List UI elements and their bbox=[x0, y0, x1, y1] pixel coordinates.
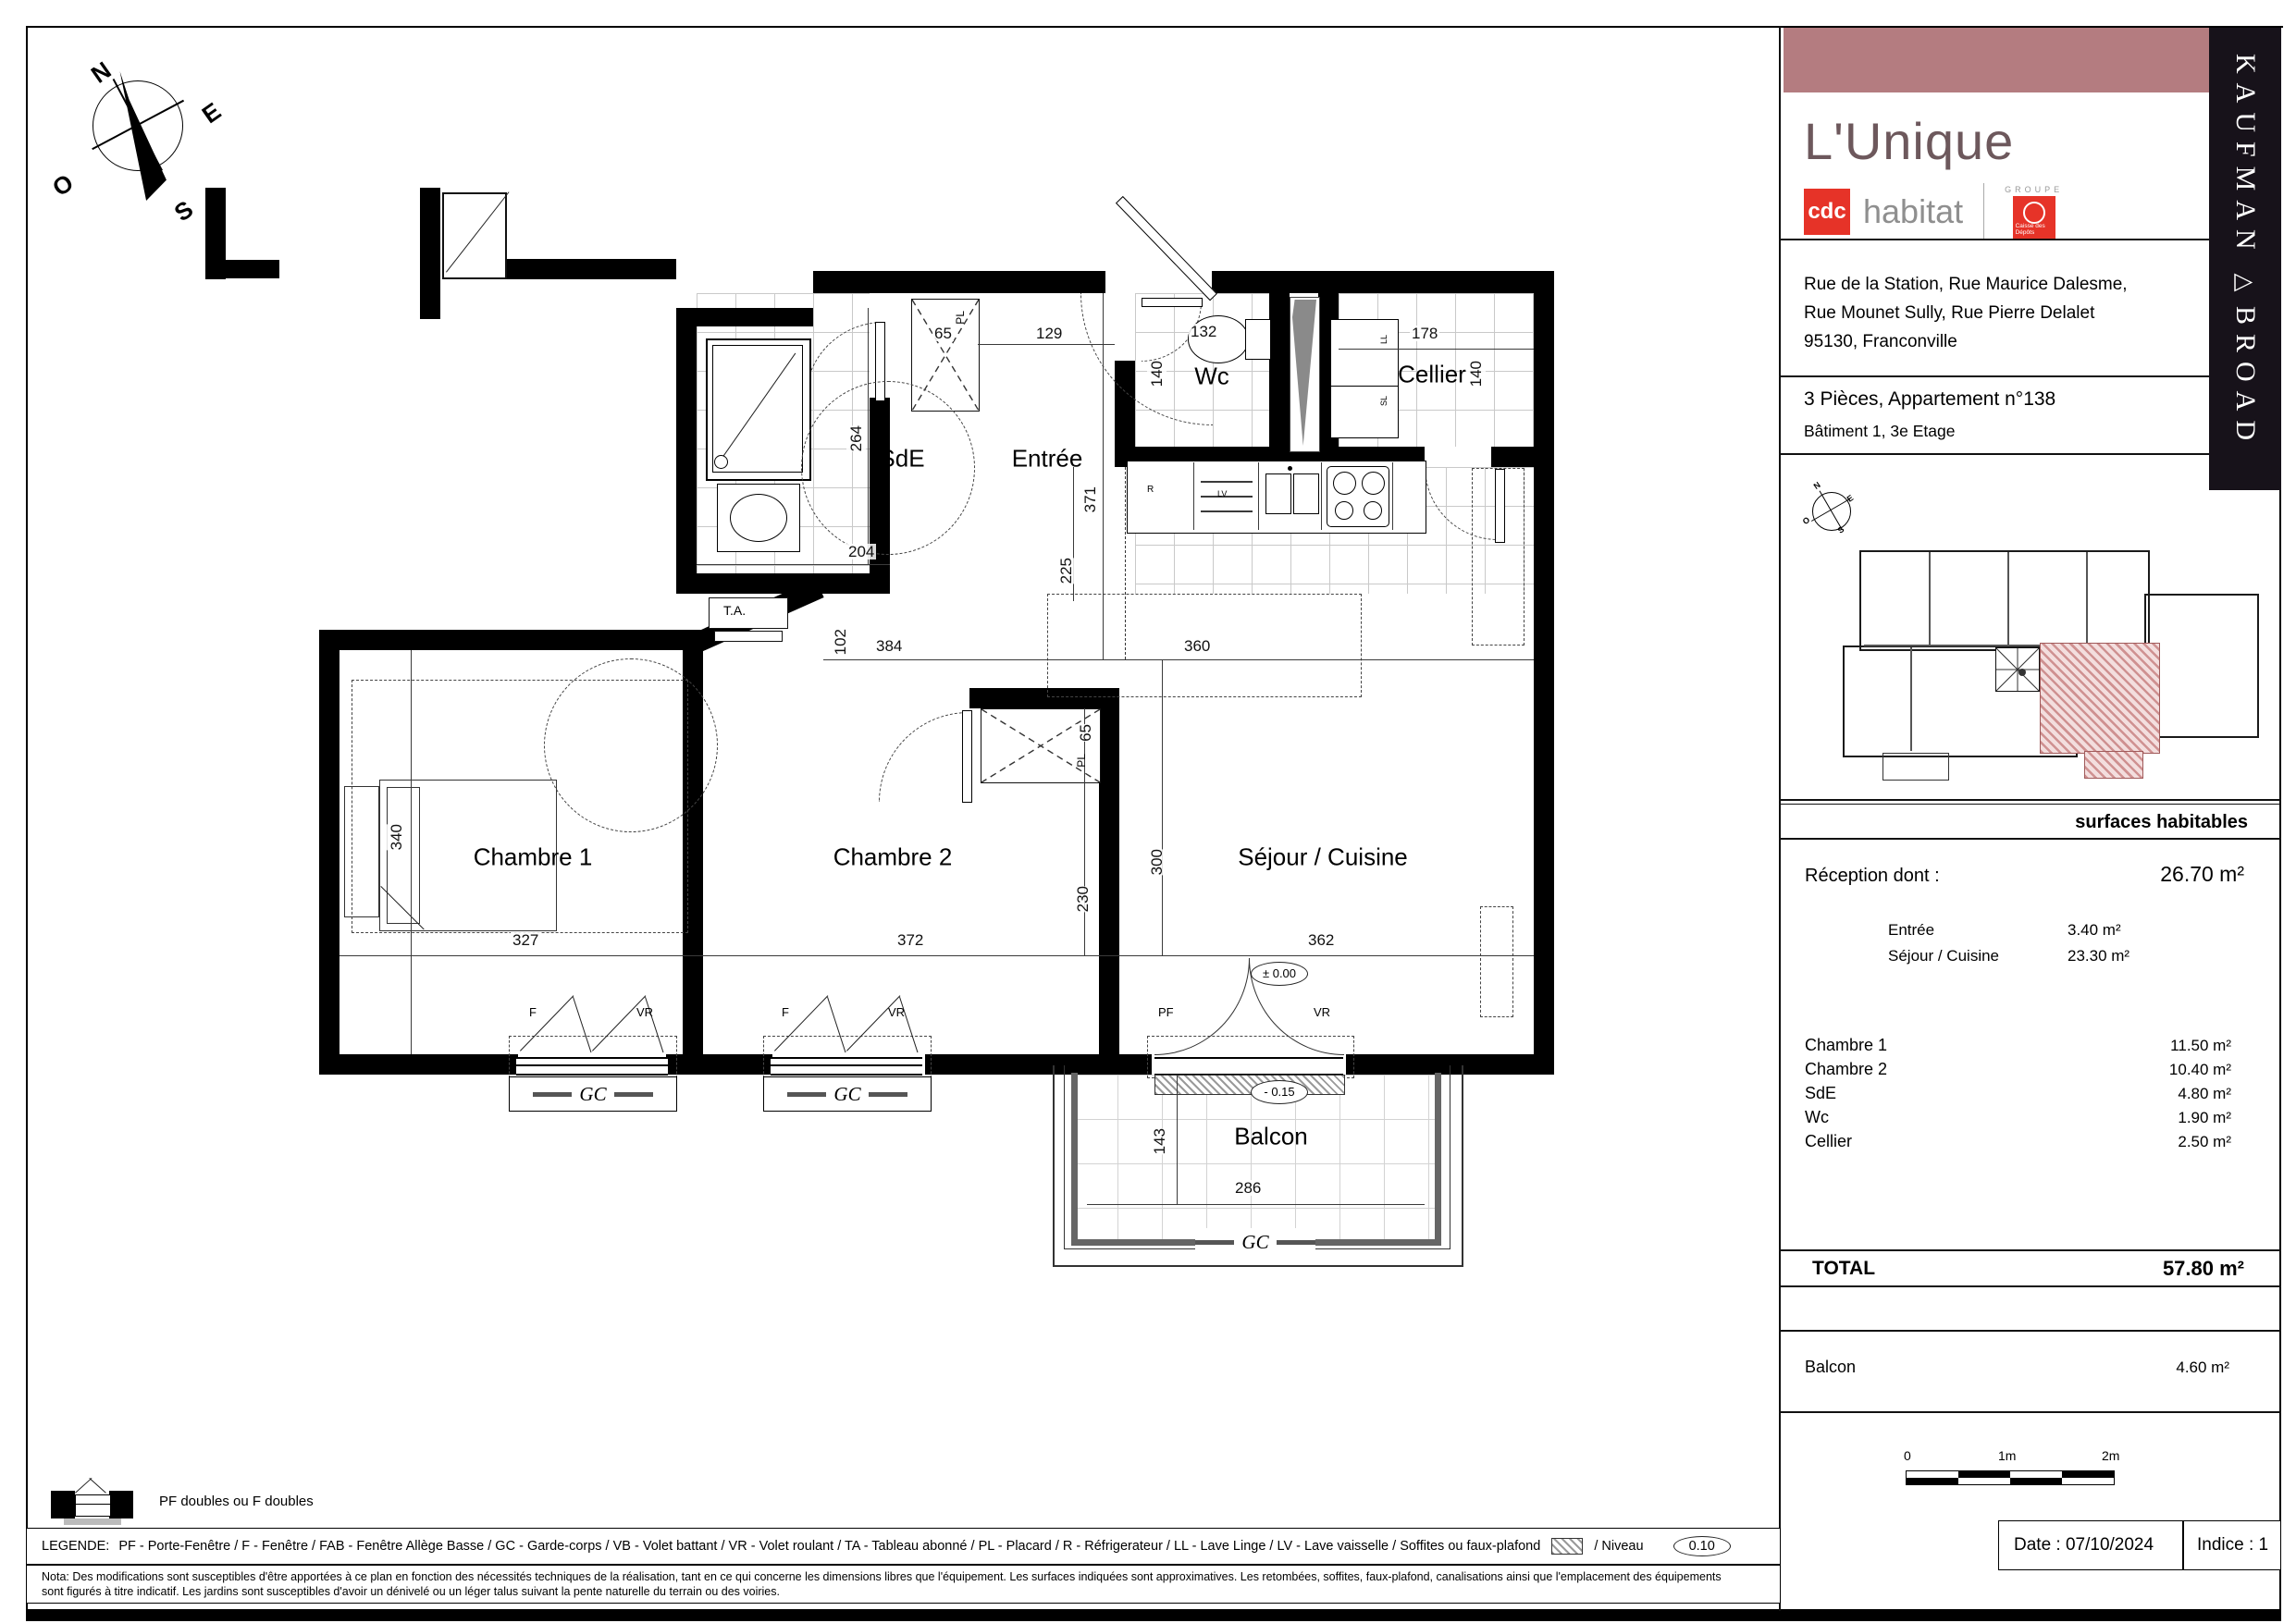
keyplan-apartment-highlight bbox=[2040, 643, 2160, 754]
wall-segment bbox=[319, 630, 703, 650]
panel-pink-bar bbox=[1784, 28, 2209, 92]
habitat-logo-text: habitat bbox=[1863, 192, 1963, 231]
pf-doubles-label: PF doubles ou F doubles bbox=[159, 1494, 314, 1509]
keyplan-compass-n: N bbox=[1812, 480, 1822, 491]
total-row: TOTAL 57.80 m² bbox=[1779, 1251, 2281, 1285]
dim-label: 360 bbox=[1182, 638, 1212, 654]
wall-segment bbox=[1212, 271, 1554, 293]
placard-x bbox=[981, 709, 1100, 782]
cdc-habitat-logo: cdc habitat GROUPE Caisse des Dépôts bbox=[1804, 183, 2063, 240]
nota-line: Nota: Des modifications sont susceptible… bbox=[42, 1569, 1762, 1584]
surface-room-label: Chambre 1 bbox=[1805, 1036, 1887, 1055]
keyplan-balcony-tab bbox=[1882, 753, 1949, 781]
scale-cell bbox=[2062, 1471, 2114, 1478]
dim-line bbox=[823, 659, 1534, 660]
dim-label: 140 bbox=[1147, 361, 1167, 387]
plan-small-label: PF bbox=[1158, 1006, 1174, 1018]
legend-prefix: LEGENDE: bbox=[42, 1539, 109, 1554]
kaufman-broad-strip: KAUFMAN △ BROAD bbox=[2209, 28, 2281, 490]
balcon-label: Balcon bbox=[1805, 1358, 1856, 1377]
surfaces-header: surfaces habitables bbox=[1779, 812, 2248, 833]
wall-segment bbox=[1491, 447, 1534, 467]
plan-small-label: F bbox=[782, 1006, 789, 1018]
dim-label: 362 bbox=[1306, 932, 1336, 948]
pf-symbol-window bbox=[75, 1494, 111, 1517]
panel-divider bbox=[1779, 804, 2281, 805]
surface-detail-label: Séjour / Cuisine bbox=[1888, 947, 1999, 965]
panel-divider bbox=[1779, 799, 2281, 801]
soffit-dashed-box bbox=[1480, 906, 1513, 1017]
floor-plan: GC GC GC bbox=[0, 0, 1779, 1480]
wall-segment bbox=[676, 573, 890, 594]
legend-niveau-label: / Niveau bbox=[1594, 1539, 1643, 1554]
dim-line bbox=[1162, 659, 1163, 955]
counter-divider bbox=[1258, 462, 1259, 530]
chambre2-door-leaf bbox=[962, 710, 972, 803]
sheet-border-bottom-bar bbox=[26, 1609, 2281, 1621]
counter-divider bbox=[1193, 462, 1194, 530]
room-label: Séjour / Cuisine bbox=[1238, 843, 1408, 872]
total-value: 57.80 m² bbox=[2163, 1257, 2244, 1281]
legend-niveau-value: 0.10 bbox=[1689, 1539, 1715, 1554]
dim-label: 65 bbox=[932, 326, 954, 341]
surface-detail-label: Entrée bbox=[1888, 921, 1934, 940]
balcon-row: Balcon 4.60 m² bbox=[1779, 1332, 2281, 1411]
plan-small-label: T.A. bbox=[723, 604, 746, 617]
kaufman-broad-triangle-icon: △ bbox=[2231, 273, 2260, 291]
dim-label: 327 bbox=[511, 932, 540, 948]
sink-bowl bbox=[1265, 473, 1291, 514]
balcon-value: 4.60 m² bbox=[2176, 1359, 2229, 1377]
zone-dashed-box bbox=[352, 680, 688, 933]
nota-text: Nota: Des modifications sont susceptible… bbox=[42, 1569, 1762, 1599]
plan-small-label: VR bbox=[636, 1006, 653, 1018]
legend-row: LEGENDE:PF - Porte-Fenêtre / F - Fenêtre… bbox=[42, 1536, 1762, 1556]
surface-room-value: 1.90 m² bbox=[2178, 1109, 2231, 1127]
dim-label: 340 bbox=[387, 824, 406, 850]
panel-divider bbox=[1779, 1285, 2281, 1287]
dim-label: 102 bbox=[831, 629, 850, 655]
plan-small-label: F bbox=[529, 1006, 537, 1018]
dim-label: 178 bbox=[1410, 326, 1439, 341]
wall-segment bbox=[813, 271, 1105, 293]
address-block: Rue de la Station, Rue Maurice Dalesme, … bbox=[1804, 270, 2128, 356]
dim-label: 371 bbox=[1080, 486, 1100, 512]
scale-cell bbox=[1958, 1471, 2010, 1478]
surface-room-value: 2.50 m² bbox=[2178, 1133, 2231, 1151]
dim-label: 204 bbox=[846, 544, 876, 559]
tableau-abonne-strip bbox=[714, 631, 783, 642]
indice-value: Indice : 1 bbox=[2197, 1535, 2268, 1555]
nota-line: sont figurés à titre indicatif. Les jard… bbox=[42, 1584, 1762, 1599]
dim-label: 264 bbox=[846, 425, 866, 451]
wall-segment bbox=[1534, 293, 1554, 1075]
dim-label: 132 bbox=[1189, 324, 1218, 339]
wall-segment bbox=[319, 1054, 518, 1075]
gc-bar bbox=[869, 1092, 907, 1097]
total-label: TOTAL bbox=[1812, 1258, 1875, 1280]
counter-divider bbox=[1321, 462, 1322, 530]
room-label: Wc bbox=[1194, 363, 1229, 391]
reception-value: 26.70 m² bbox=[2160, 862, 2244, 887]
scale-tick-2m: 2m bbox=[2102, 1448, 2119, 1463]
pf-doubles-symbol bbox=[51, 1478, 153, 1524]
pf-symbol-sill bbox=[64, 1518, 121, 1525]
cdc-logo-text: cdc bbox=[1808, 199, 1845, 225]
logo-divider bbox=[1983, 183, 1984, 240]
wall-segment bbox=[420, 188, 440, 319]
surfaces-table: Réception dont : 26.70 m² Entrée3.40 m²S… bbox=[1779, 840, 2281, 1249]
dim-label: 300 bbox=[1147, 849, 1167, 875]
sink-bowl bbox=[1293, 473, 1319, 514]
plan-small-label: LV bbox=[1217, 490, 1227, 498]
dim-label: 230 bbox=[1073, 886, 1092, 912]
dim-label: 372 bbox=[895, 932, 925, 948]
shaft-triangle bbox=[1292, 300, 1316, 446]
dim-line bbox=[1103, 293, 1104, 659]
gc-bar bbox=[533, 1092, 572, 1097]
scale-tick-1m: 1m bbox=[1998, 1448, 2016, 1463]
scale-cell bbox=[2010, 1478, 2062, 1484]
legend-text: PF - Porte-Fenêtre / F - Fenêtre / FAB -… bbox=[118, 1539, 1540, 1554]
groupe-text: GROUPE bbox=[2005, 185, 2063, 194]
wall-segment bbox=[666, 1054, 772, 1075]
tableau-abonne-box bbox=[709, 597, 788, 629]
dim-label: 225 bbox=[1056, 558, 1076, 584]
window-midline bbox=[771, 1064, 922, 1066]
gc-bar bbox=[787, 1092, 826, 1097]
address-line: Rue Mounet Sully, Rue Pierre Delalet bbox=[1804, 299, 2128, 327]
date-value: Date : 07/10/2024 bbox=[2014, 1535, 2154, 1555]
apartment-floor: Bâtiment 1, 3e Etage bbox=[1804, 422, 1955, 441]
stove-burner bbox=[1364, 501, 1382, 520]
reception-label: Réception dont : bbox=[1805, 866, 1940, 887]
appliance-ll bbox=[1330, 319, 1399, 387]
gc-bar bbox=[1277, 1240, 1315, 1245]
indice-box: Indice : 1 bbox=[2183, 1520, 2281, 1570]
wall-segment bbox=[319, 630, 339, 1075]
room-label: Chambre 2 bbox=[833, 843, 953, 872]
dim-line bbox=[411, 650, 412, 1054]
groupe-caisse-logo: GROUPE Caisse des Dépôts bbox=[2005, 185, 2063, 239]
dim-label: 286 bbox=[1233, 1180, 1263, 1196]
dishwasher-line bbox=[1201, 510, 1253, 512]
surface-room-value: 11.50 m² bbox=[2170, 1037, 2231, 1055]
scale-cell bbox=[1907, 1478, 1958, 1484]
surface-room-value: 10.40 m² bbox=[2169, 1061, 2231, 1079]
keyplan-partition bbox=[1910, 647, 1912, 751]
keyplan-building-wing bbox=[2144, 594, 2259, 738]
scale-cell bbox=[2062, 1478, 2114, 1484]
dim-label: 143 bbox=[1150, 1128, 1169, 1154]
kaufman-text: KAUFMAN bbox=[2229, 54, 2261, 259]
room-label: SdE bbox=[879, 445, 924, 473]
dim-line bbox=[339, 955, 1534, 956]
pf-symbol-v bbox=[89, 1478, 106, 1494]
soffit-dashed-box bbox=[1472, 468, 1524, 646]
dim-label: 140 bbox=[1466, 361, 1486, 387]
dim-line bbox=[1087, 1204, 1425, 1205]
keyplan-partition bbox=[2007, 552, 2009, 645]
keyplan-stair-lines bbox=[1996, 648, 2039, 691]
address-line: 95130, Franconville bbox=[1804, 327, 2128, 356]
pf-symbol-v bbox=[75, 1478, 93, 1494]
dim-label: 129 bbox=[1034, 326, 1064, 341]
panel-divider bbox=[1779, 239, 2209, 240]
wall-segment bbox=[205, 260, 279, 278]
chambre2-window bbox=[771, 1057, 922, 1076]
dim-label: 384 bbox=[874, 638, 904, 654]
gc-label: GC bbox=[833, 1083, 860, 1106]
plan-small-label: R bbox=[1147, 486, 1154, 495]
scale-bar-cells bbox=[1906, 1470, 2115, 1485]
gc-bar bbox=[614, 1092, 653, 1097]
keyplan-partition bbox=[1929, 552, 1931, 645]
caisse-depots-square: Caisse des Dépôts bbox=[2013, 196, 2055, 239]
surface-room-label: Cellier bbox=[1805, 1132, 1852, 1151]
dim-line bbox=[978, 344, 1115, 345]
apartment-type: 3 Pièces, Appartement n°138 bbox=[1804, 388, 2055, 411]
surface-detail-value: 23.30 m² bbox=[2068, 947, 2129, 965]
surface-room-label: SdE bbox=[1805, 1084, 1836, 1103]
plan-small-label: LL bbox=[1380, 335, 1389, 344]
room-label: Chambre 1 bbox=[474, 843, 593, 872]
pf-symbol-black bbox=[51, 1491, 75, 1518]
dim-label: 65 bbox=[1076, 724, 1095, 742]
gc-balcony: GC bbox=[1195, 1228, 1315, 1256]
chambre1-window bbox=[516, 1057, 668, 1076]
chambre2-door-arc bbox=[879, 712, 969, 802]
dim-line bbox=[868, 308, 869, 564]
keyplan-apartment-balcony bbox=[2084, 751, 2143, 779]
gc-label: GC bbox=[1241, 1231, 1268, 1254]
balcony-rail-right bbox=[1435, 1073, 1441, 1245]
wall-segment bbox=[1099, 688, 1119, 1075]
plan-small-label: VR bbox=[1314, 1006, 1330, 1018]
gc-label: GC bbox=[579, 1083, 606, 1106]
panel-divider bbox=[1779, 375, 2209, 377]
plan-small-label: PL bbox=[955, 311, 966, 325]
scale-bar: 0 1m 2m bbox=[1896, 1448, 2128, 1493]
keyplan-compass-o: O bbox=[1801, 515, 1811, 526]
wall-segment bbox=[676, 308, 813, 326]
address-line: Rue de la Station, Rue Maurice Dalesme, bbox=[1804, 270, 2128, 299]
scale-cell bbox=[1958, 1478, 2010, 1484]
scale-tick-0: 0 bbox=[1904, 1448, 1911, 1463]
soffit-swatch bbox=[1551, 1538, 1583, 1555]
appliance-sl bbox=[1330, 386, 1399, 438]
washbasin-bowl bbox=[730, 494, 787, 542]
entry-door-leaf bbox=[1116, 196, 1217, 301]
dim-line bbox=[1177, 1075, 1178, 1204]
dim-line bbox=[1084, 708, 1085, 955]
cdc-logo-square: cdc bbox=[1804, 189, 1850, 235]
window-midline bbox=[516, 1064, 668, 1066]
wall-segment bbox=[505, 259, 676, 279]
key-plan: N E S O bbox=[1781, 455, 2281, 799]
caisse-depots-text: Caisse des Dépôts bbox=[2016, 223, 2055, 236]
stove-burner bbox=[1333, 472, 1356, 495]
wc-door-leaf bbox=[1142, 298, 1203, 307]
pf-symbol-line bbox=[76, 1504, 110, 1505]
dim-line bbox=[1339, 349, 1534, 350]
balcony-rail-left bbox=[1071, 1073, 1078, 1245]
level-badge: ± 0.00 bbox=[1251, 962, 1308, 986]
date-box: Date : 07/10/2024 bbox=[1998, 1520, 2183, 1570]
keyplan-building-wing bbox=[1859, 550, 2150, 651]
stove-burner bbox=[1335, 501, 1353, 520]
plan-small-label: VR bbox=[888, 1006, 905, 1018]
surface-room-label: Wc bbox=[1805, 1108, 1829, 1127]
legend-niveau-ellipse: 0.10 bbox=[1673, 1536, 1731, 1556]
panel-divider bbox=[1779, 1411, 2281, 1413]
surface-room-label: Chambre 2 bbox=[1805, 1060, 1887, 1079]
room-label: Entrée bbox=[1012, 445, 1083, 473]
caisse-emblem-circle bbox=[2023, 202, 2045, 224]
keyplan-stair bbox=[1995, 647, 2040, 692]
zone-dashed-line bbox=[1125, 467, 1126, 659]
dim-line bbox=[697, 564, 890, 565]
pf-symbol-black bbox=[109, 1491, 133, 1518]
shower-tray-inner bbox=[712, 345, 803, 473]
program-title: L'Unique bbox=[1804, 111, 2014, 171]
keyplan-compass-s: S bbox=[1836, 524, 1846, 535]
stove-burner bbox=[1362, 472, 1385, 495]
plan-small-label: PL bbox=[1076, 754, 1087, 768]
toilet-tank bbox=[1245, 319, 1271, 360]
counter-divider bbox=[1392, 462, 1393, 530]
scale-cell bbox=[2010, 1471, 2062, 1478]
gc-chambre1: GC bbox=[509, 1076, 677, 1112]
keyplan-partition bbox=[2086, 552, 2088, 645]
wall-segment bbox=[1269, 293, 1290, 467]
dishwasher-line bbox=[1201, 481, 1253, 483]
surface-room-value: 4.80 m² bbox=[2178, 1085, 2231, 1103]
gc-bar bbox=[1195, 1240, 1234, 1245]
scale-cell bbox=[1907, 1471, 1958, 1478]
room-label: Balcon bbox=[1234, 1123, 1308, 1151]
level-badge: - 0.15 bbox=[1251, 1080, 1308, 1104]
gc-chambre2: GC bbox=[763, 1076, 932, 1112]
wall-segment bbox=[676, 308, 697, 594]
sink-faucet bbox=[1288, 466, 1292, 471]
technical-shaft bbox=[1290, 297, 1320, 452]
surface-detail-value: 3.40 m² bbox=[2068, 921, 2121, 940]
plan-small-label: SL bbox=[1380, 396, 1389, 406]
keyplan-compass: N E S O bbox=[1801, 481, 1857, 536]
room-label: Cellier bbox=[1398, 361, 1466, 389]
shower-drain bbox=[714, 455, 728, 469]
placard-chambre2 bbox=[981, 708, 1101, 783]
broad-text: BROAD bbox=[2229, 306, 2261, 449]
